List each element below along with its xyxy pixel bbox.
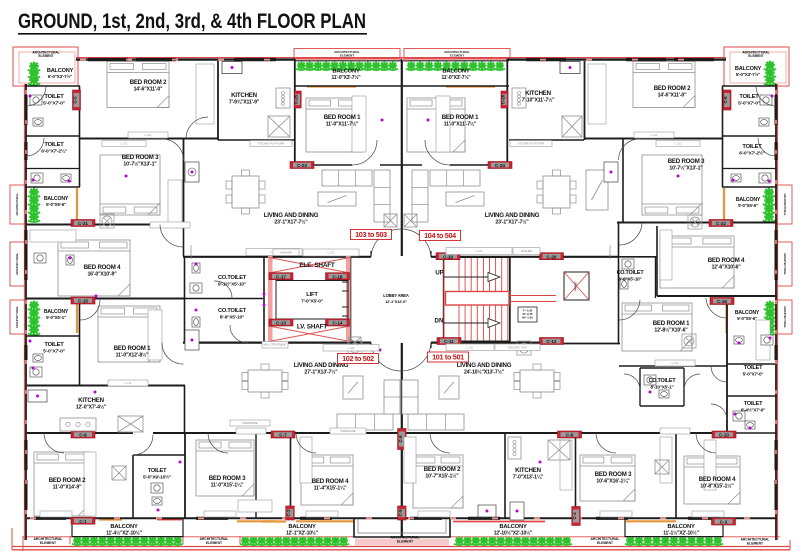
svg-text:C-10: C-10 [719, 433, 729, 438]
svg-text:L.C.D: L.C.D [328, 251, 335, 255]
svg-text:6'-0"X7'-2½": 6'-0"X7'-2½" [739, 149, 765, 156]
svg-text:14'-6"X11'-0": 14'-6"X11'-0" [134, 86, 163, 92]
svg-text:WARDROBE: WARDROBE [340, 429, 355, 433]
svg-text:CO.TOILET: CO.TOILET [218, 308, 247, 314]
svg-text:C-12: C-12 [547, 339, 557, 344]
svg-text:C-9: C-9 [398, 509, 403, 517]
svg-text:7'-0"X5'-0": 7'-0"X5'-0" [301, 298, 323, 304]
svg-text:12'-1"X12'-0": 12'-1"X12'-0" [385, 299, 407, 304]
svg-text:ELE. SHAFT: ELE. SHAFT [299, 262, 335, 269]
svg-text:KITCHEN: KITCHEN [525, 90, 551, 97]
svg-text:BED ROOM 4: BED ROOM 4 [84, 264, 121, 271]
svg-text:8'-9"X5'-10": 8'-9"X5'-10" [220, 314, 244, 320]
svg-text:CO.TOILET: CO.TOILET [617, 270, 645, 276]
svg-text:C-20: C-20 [547, 254, 557, 259]
svg-text:5'-0"X5'-6": 5'-0"X5'-6" [737, 316, 757, 321]
svg-text:9'-1½"X5'-10": 9'-1½"X5'-10" [218, 280, 246, 287]
svg-text:TOILET: TOILET [148, 468, 167, 474]
svg-text:BED ROOM 1: BED ROOM 1 [324, 114, 361, 121]
svg-text:ELEMENT: ELEMENT [38, 54, 53, 58]
svg-text:C-4: C-4 [572, 512, 577, 520]
svg-text:TOILET: TOILET [744, 365, 763, 371]
svg-text:L.C.D: L.C.D [476, 249, 483, 253]
svg-text:8'-10"X5'-1": 8'-10"X5'-1" [650, 384, 673, 389]
svg-text:BALCONY: BALCONY [332, 69, 360, 75]
svg-text:BED ROOM 1: BED ROOM 1 [653, 320, 690, 327]
svg-text:12'-0"X7'-4½": 12'-0"X7'-4½" [76, 403, 107, 410]
svg-text:ARCHITECTURAL: ARCHITECTURAL [15, 305, 19, 328]
svg-text:LIFT: LIFT [306, 292, 318, 298]
svg-text:BALCONY: BALCONY [442, 69, 470, 75]
svg-text:10'-7½"X13'-1": 10'-7½"X13'-1" [123, 160, 157, 167]
svg-text:L.C.D: L.C.D [651, 133, 658, 137]
svg-text:BALCONY: BALCONY [288, 524, 316, 530]
svg-text:BED ROOM 4: BED ROOM 4 [708, 257, 745, 264]
svg-text:LOBBY AREA: LOBBY AREA [383, 293, 409, 298]
svg-text:11'-0"X14'-9": 11'-0"X14'-9" [53, 484, 82, 490]
svg-text:11'-0"X12'-8½": 11'-0"X12'-8½" [116, 351, 150, 358]
svg-text:6'-4½"X7'-0": 6'-4½"X7'-0" [741, 406, 765, 412]
svg-text:C-5: C-5 [73, 96, 78, 104]
svg-text:ELEMENT: ELEMENT [450, 54, 465, 58]
svg-text:BED ROOM 1: BED ROOM 1 [114, 345, 151, 352]
svg-text:LIVING AND DINING: LIVING AND DINING [457, 362, 512, 369]
svg-text:C-16: C-16 [717, 299, 727, 304]
svg-text:KITCHEN: KITCHEN [78, 397, 104, 404]
svg-text:W= 1.00: W= 1.00 [522, 316, 533, 320]
svg-text:C-1: C-1 [79, 519, 87, 524]
svg-text:C-14: C-14 [333, 321, 343, 326]
svg-text:5'-0"X7'-0": 5'-0"X7'-0" [43, 100, 65, 106]
svg-text:11'-0"X11'-7½": 11'-0"X11'-7½" [326, 120, 359, 127]
svg-text:C-8: C-8 [398, 435, 403, 443]
svg-text:ARCHITECTURAL: ARCHITECTURAL [783, 193, 787, 216]
svg-text:23'-1"X17'-7½": 23'-1"X17'-7½" [495, 218, 529, 225]
svg-text:23'-1"X17'-7½": 23'-1"X17'-7½" [274, 218, 308, 225]
svg-text:LIVING AND DINING: LIVING AND DINING [264, 212, 319, 219]
svg-text:27'-1"X13'-7½": 27'-1"X13'-7½" [304, 368, 338, 375]
svg-text:CO.TOILET: CO.TOILET [218, 275, 247, 281]
svg-text:BALCONY: BALCONY [499, 524, 527, 530]
svg-text:7'-0"X13'-1¼": 7'-0"X13'-1¼" [513, 473, 544, 480]
svg-text:C-13: C-13 [276, 321, 286, 326]
svg-text:C-26: C-26 [501, 94, 506, 104]
svg-text:CO.TOILET: CO.TOILET [649, 378, 677, 384]
svg-text:ELEMENT: ELEMENT [597, 541, 614, 545]
svg-text:C-7: C-7 [279, 433, 287, 438]
svg-text:L.C.D: L.C.D [467, 345, 474, 349]
svg-text:L.C.D: L.C.D [675, 142, 682, 146]
svg-text:11'-4½"X2'-10½": 11'-4½"X2'-10½" [106, 530, 142, 537]
svg-text:GROUND, 1st, 2nd, 3rd, & 4th F: GROUND, 1st, 2nd, 3rd, & 4th FLOOR PLAN [18, 9, 366, 33]
svg-text:7'-9¾"X11'-9": 7'-9¾"X11'-9" [229, 98, 260, 105]
svg-text:BED ROOM 4: BED ROOM 4 [699, 476, 736, 483]
svg-text:5'-0"X5'-1": 5'-0"X5'-1" [46, 315, 66, 320]
svg-text:ELEMENT: ELEMENT [206, 541, 223, 545]
svg-text:PRIVET: PRIVET [574, 281, 578, 291]
svg-text:ELEMENT: ELEMENT [340, 54, 355, 58]
svg-text:10'-7½"X13'-1": 10'-7½"X13'-1" [669, 164, 703, 171]
svg-text:L.C.D: L.C.D [348, 346, 355, 350]
svg-text:ARCHITECTURAL: ARCHITECTURAL [15, 252, 19, 275]
svg-text:C-9: C-9 [566, 433, 574, 438]
svg-text:C-3: C-3 [720, 520, 728, 525]
svg-text:5'-0"X5'-6": 5'-0"X5'-6" [46, 202, 66, 207]
svg-text:TOILET: TOILET [44, 142, 64, 148]
svg-text:ARCHITECTURAL: ARCHITECTURAL [15, 193, 19, 216]
svg-text:6'-6"X5'-10": 6'-6"X5'-10" [618, 276, 641, 281]
svg-text:C-11: C-11 [444, 339, 454, 344]
svg-text:12'-1"X2'-10½": 12'-1"X2'-10½" [286, 530, 319, 537]
svg-text:L.C.D: L.C.D [672, 361, 679, 365]
svg-text:BED ROOM 3: BED ROOM 3 [209, 475, 246, 482]
svg-text:DRESSING: DRESSING [189, 245, 193, 259]
svg-text:10'-8"X15'-1½": 10'-8"X15'-1½" [700, 482, 734, 489]
svg-text:14'-6"X11'-0": 14'-6"X11'-0" [658, 92, 687, 98]
svg-text:11'-4"X15'-1¼": 11'-4"X15'-1¼" [314, 484, 348, 491]
svg-text:ELEMENT: ELEMENT [40, 541, 57, 545]
svg-text:101 to 501: 101 to 501 [432, 353, 464, 362]
svg-text:UP: UP [435, 270, 444, 277]
svg-text:ARCHITECTURAL: ARCHITECTURAL [783, 253, 787, 276]
svg-text:BED ROOM 2: BED ROOM 2 [424, 466, 461, 473]
svg-text:C-19: C-19 [443, 254, 453, 259]
svg-text:16'-0"X10'-9": 16'-0"X10'-9" [87, 271, 117, 277]
svg-text:WALL TREATMENT: WALL TREATMENT [263, 343, 287, 347]
svg-text:5'-0"X5'-6": 5'-0"X5'-6" [738, 203, 758, 208]
svg-text:12'-6"X10'-6": 12'-6"X10'-6" [711, 264, 741, 270]
svg-text:C-6: C-6 [723, 96, 728, 104]
svg-text:TOILET: TOILET [744, 401, 763, 407]
svg-text:C-21: C-21 [78, 221, 88, 226]
svg-text:6'-0"X3'-7½": 6'-0"X3'-7½" [48, 73, 72, 79]
svg-text:C-18: C-18 [333, 274, 343, 279]
svg-text:WARDROBE: WARDROBE [242, 421, 257, 425]
svg-text:BED ROOM 2: BED ROOM 2 [130, 79, 167, 86]
svg-text:L.C.D: L.C.D [125, 381, 132, 385]
svg-text:C-25: C-25 [294, 94, 299, 104]
svg-text:BALCONY: BALCONY [667, 524, 695, 530]
svg-text:KITCHEN PLATFORM: KITCHEN PLATFORM [518, 142, 544, 146]
svg-text:ELEMENT: ELEMENT [397, 540, 414, 544]
svg-text:GROCERY UNIT: GROCERY UNIT [508, 345, 528, 349]
svg-text:BED ROOM 3: BED ROOM 3 [668, 158, 705, 165]
svg-text:5'-0"X7'-0": 5'-0"X7'-0" [738, 100, 760, 106]
svg-text:TOILET: TOILET [742, 144, 762, 150]
svg-text:C-23: C-23 [297, 163, 307, 168]
svg-text:TOILET: TOILET [44, 94, 64, 100]
svg-text:103 to 503: 103 to 503 [355, 230, 387, 239]
svg-text:WASHER: WASHER [521, 249, 532, 253]
svg-text:102 to 502: 102 to 502 [342, 354, 374, 363]
svg-text:11'-0"X3'-7½": 11'-0"X3'-7½" [442, 74, 472, 81]
svg-text:11'-0"X11'-7½": 11'-0"X11'-7½" [444, 120, 477, 127]
svg-text:BED ROOM 2: BED ROOM 2 [49, 477, 86, 484]
svg-text:6'-0"X7'-2¼": 6'-0"X7'-2¼" [41, 147, 67, 154]
svg-text:BED ROOM 1: BED ROOM 1 [442, 114, 479, 121]
svg-text:11'-1½"X2'-10½": 11'-1½"X2'-10½" [663, 530, 699, 537]
svg-text:DRESSING: DRESSING [608, 245, 612, 259]
svg-text:ELEMENT: ELEMENT [748, 54, 763, 58]
svg-text:10'-7"X15'-1½": 10'-7"X15'-1½" [425, 472, 459, 479]
svg-text:C-6: C-6 [79, 433, 87, 438]
svg-text:LIVING AND DINING: LIVING AND DINING [485, 212, 540, 219]
svg-text:C-2: C-2 [286, 509, 291, 517]
svg-text:5'-0"X9'-10½": 5'-0"X9'-10½" [143, 473, 171, 480]
svg-text:BED ROOM 3: BED ROOM 3 [595, 471, 632, 478]
svg-text:KITCHEN: KITCHEN [515, 467, 541, 474]
svg-text:5'-0"X7'-0": 5'-0"X7'-0" [743, 371, 764, 376]
svg-text:DN: DN [435, 318, 444, 325]
svg-text:TOILET: TOILET [44, 342, 64, 348]
svg-text:C-17: C-17 [276, 274, 286, 279]
svg-text:5'-0"X7'-0": 5'-0"X7'-0" [43, 348, 65, 354]
svg-text:TOILET: TOILET [739, 94, 759, 100]
svg-text:12'-10½"X2'-10½": 12'-10½"X2'-10½" [494, 530, 533, 537]
svg-text:ARCHITECTURAL: ARCHITECTURAL [783, 306, 787, 329]
svg-text:5'-0"X3'-7½": 5'-0"X3'-7½" [736, 71, 760, 77]
svg-text:ELEMENT: ELEMENT [747, 542, 764, 546]
svg-text:BED ROOM 3: BED ROOM 3 [122, 154, 159, 161]
svg-text:KITCHEN PLATFORM: KITCHEN PLATFORM [258, 142, 284, 146]
svg-text:C-22: C-22 [716, 221, 726, 226]
svg-text:KITCHEN: KITCHEN [231, 92, 257, 99]
svg-text:24'-10½"X13'-7½": 24'-10½"X13'-7½" [464, 368, 505, 375]
svg-text:C-15: C-15 [78, 299, 88, 304]
svg-text:11'-0"X3'-7½": 11'-0"X3'-7½" [332, 74, 362, 81]
svg-text:L.C.D: L.C.D [145, 133, 152, 137]
svg-text:C-24: C-24 [495, 163, 505, 168]
svg-text:10'-6"X16'-1¼": 10'-6"X16'-1¼" [596, 477, 630, 484]
svg-text:L.C.D: L.C.D [121, 142, 128, 146]
svg-text:11'-0"X15'-1¼": 11'-0"X15'-1¼" [211, 481, 245, 488]
svg-text:BED ROOM 4: BED ROOM 4 [312, 478, 349, 485]
svg-text:104 to 504: 104 to 504 [424, 231, 456, 240]
svg-text:BALCONY: BALCONY [110, 524, 138, 530]
svg-text:7'-10"X11'-7½": 7'-10"X11'-7½" [522, 96, 556, 103]
svg-text:12'-8½"X10'-6": 12'-8½"X10'-6" [654, 326, 688, 333]
svg-text:WASHER: WASHER [280, 250, 291, 254]
svg-text:BED ROOM 2: BED ROOM 2 [654, 85, 691, 92]
svg-text:LV. SHAFT: LV. SHAFT [297, 324, 327, 331]
